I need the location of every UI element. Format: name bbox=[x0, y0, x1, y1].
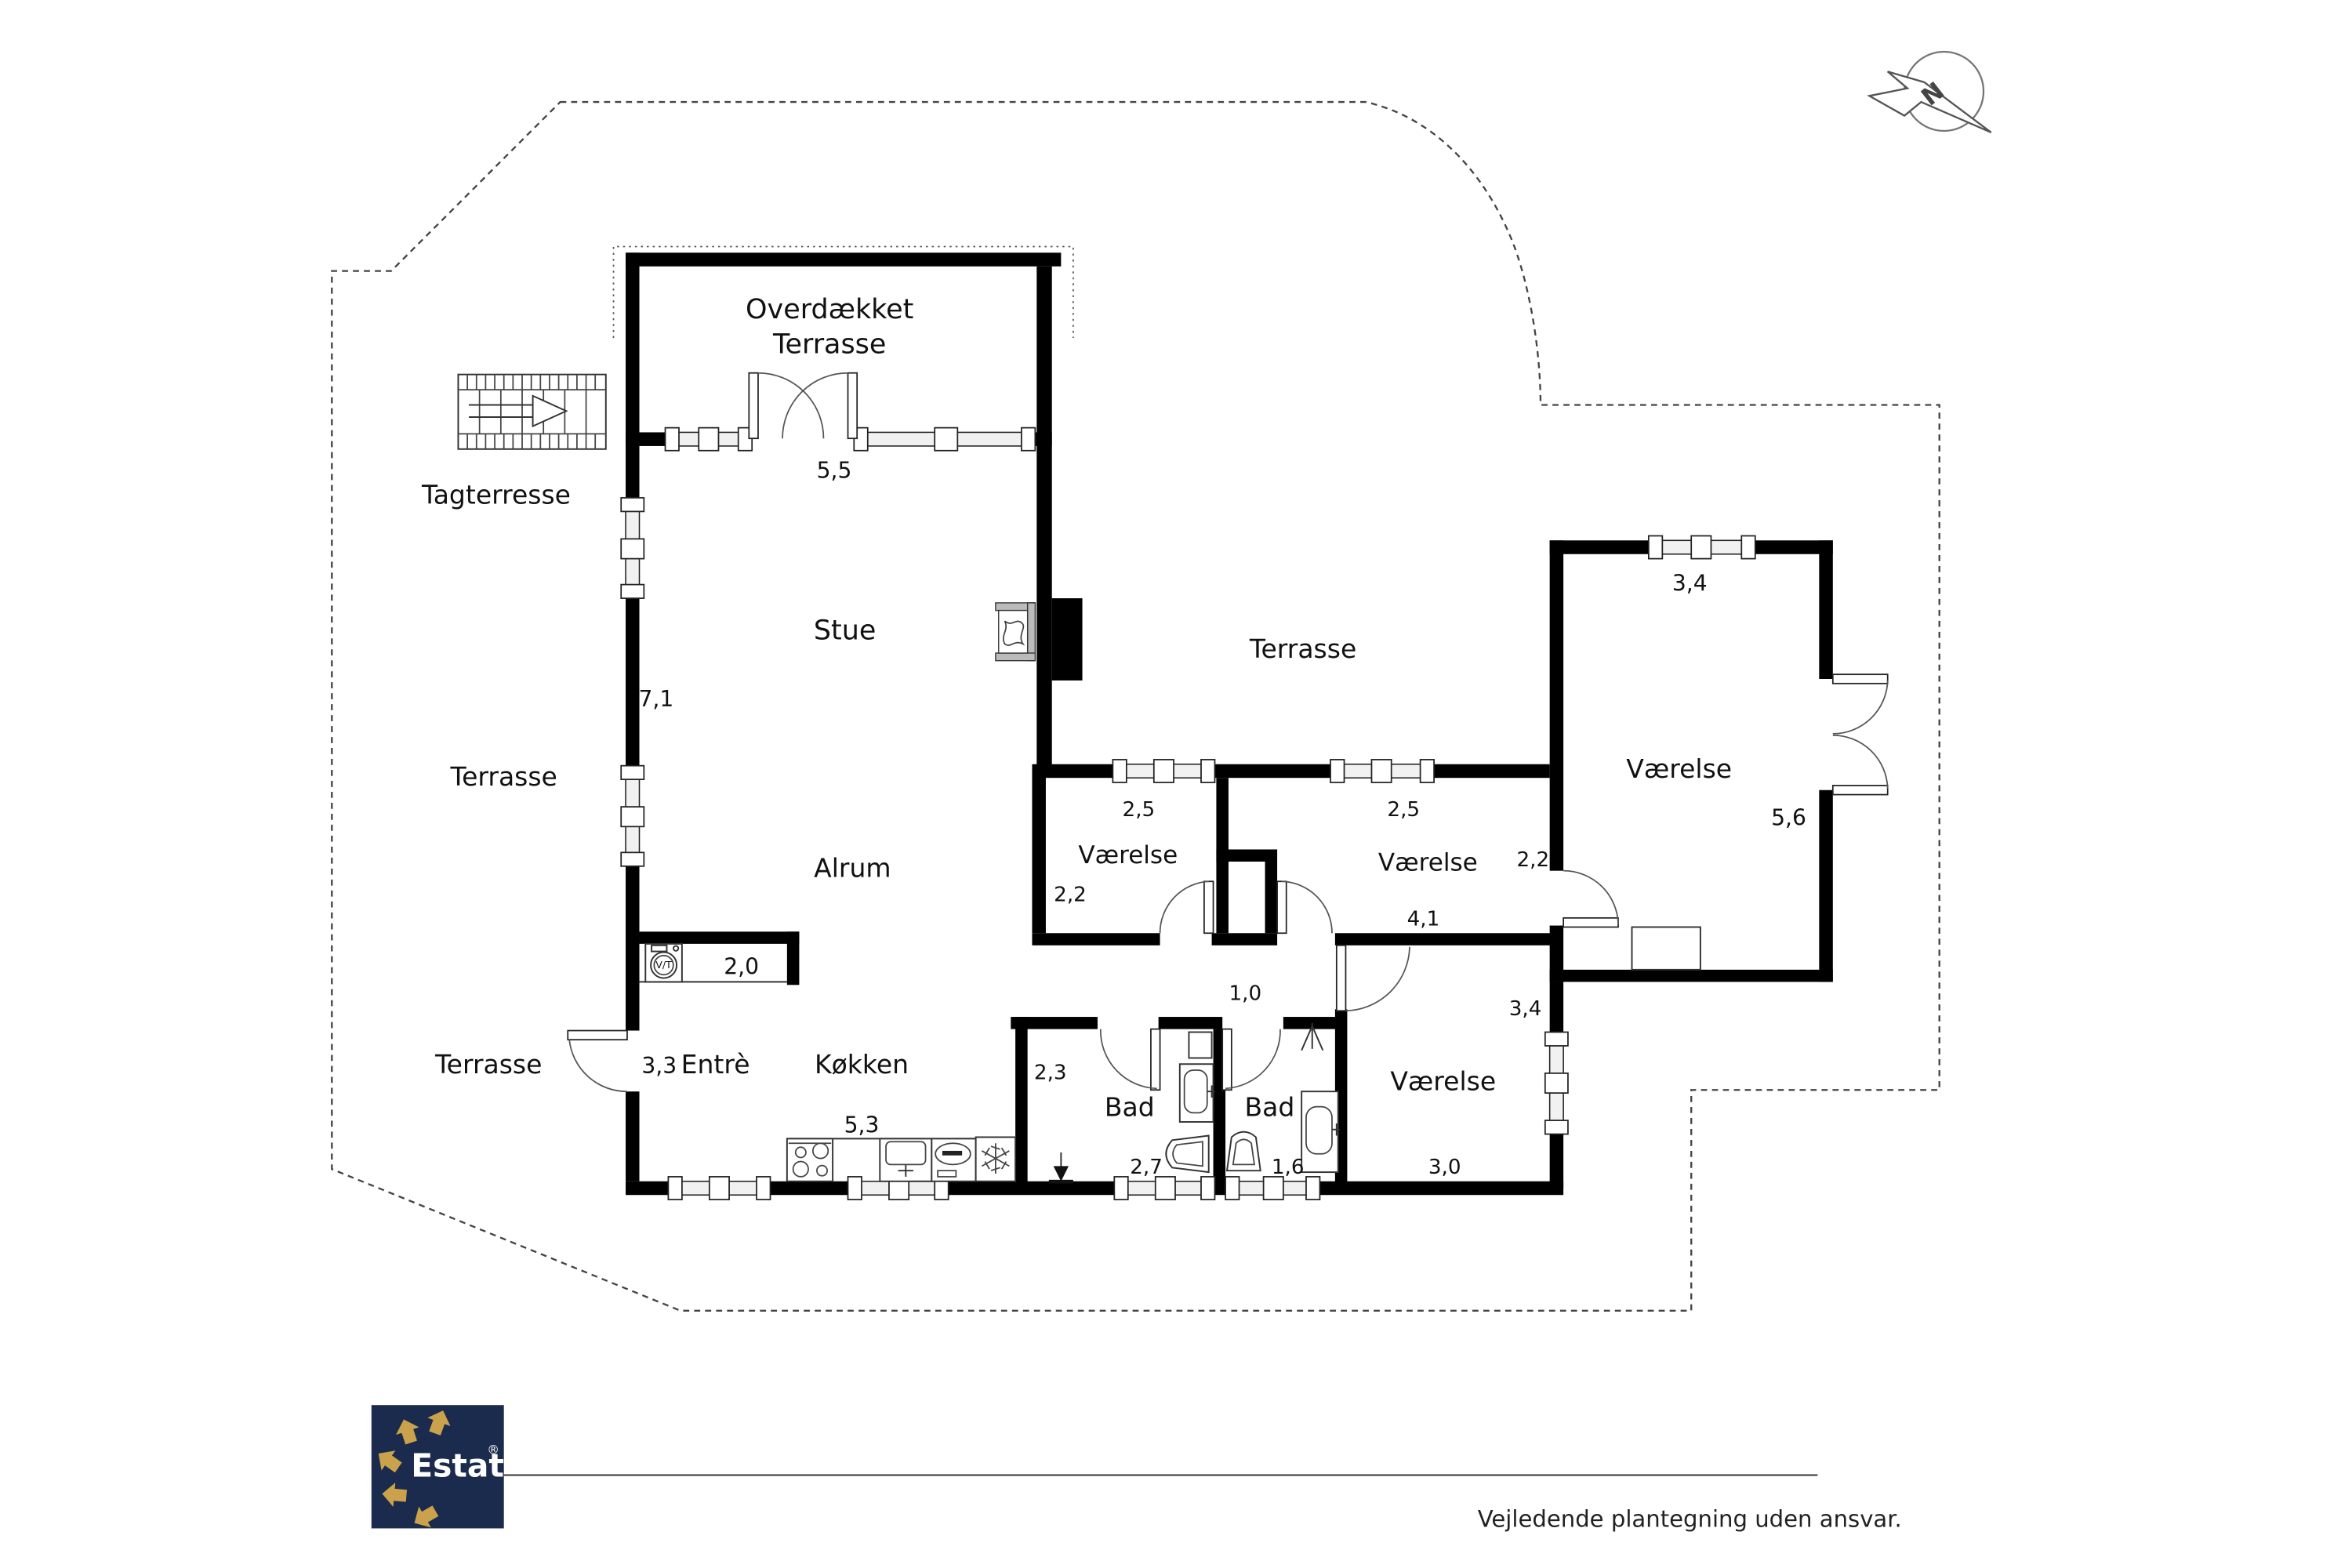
dim-bath1-w: 2,3 bbox=[1034, 1062, 1067, 1085]
floor-drain-arrow-icon bbox=[1049, 1152, 1073, 1184]
terrace-southwest-label: Terrasse bbox=[434, 1049, 542, 1080]
fireplace-icon bbox=[996, 603, 1035, 661]
window-icon bbox=[621, 766, 644, 866]
window-icon bbox=[621, 498, 644, 598]
dim-bath2-w: 1,6 bbox=[1272, 1156, 1305, 1179]
property-boundary bbox=[332, 102, 1939, 1311]
door-icon bbox=[1160, 881, 1214, 933]
stairs-icon bbox=[458, 375, 605, 449]
door-icon bbox=[1222, 1029, 1280, 1091]
window-icon bbox=[854, 428, 1035, 451]
dim-bedroom-mid-l: 4,1 bbox=[1407, 908, 1440, 931]
dim-bedroom-left-w: 2,5 bbox=[1123, 798, 1156, 822]
bedroom-mid-label: Værelse bbox=[1378, 849, 1478, 877]
estate-logo: Estate ® bbox=[372, 1405, 526, 1534]
living-room-label: Stue bbox=[814, 615, 877, 647]
window-icon bbox=[1112, 760, 1214, 782]
french-door-icon bbox=[1833, 674, 1888, 794]
dim-bedroom-east-d: 5,6 bbox=[1771, 804, 1806, 830]
dim-bedroom-south-d: 3,4 bbox=[1509, 997, 1542, 1021]
dim-covered-terrace: 5,5 bbox=[817, 458, 852, 484]
cabinet-icon bbox=[1189, 1032, 1211, 1058]
fireplace-stub-wall bbox=[1052, 598, 1083, 681]
disclaimer-text: Vejledende plantegning uden ansvar. bbox=[1478, 1506, 1902, 1533]
entry-door-icon bbox=[568, 1031, 627, 1092]
bedroom-east-label: Værelse bbox=[1626, 753, 1732, 784]
washbasin-icon bbox=[1301, 1091, 1340, 1172]
window-icon bbox=[1225, 1177, 1319, 1200]
door-icon bbox=[1277, 881, 1332, 933]
bath2-label: Bad bbox=[1244, 1091, 1294, 1122]
toilet-icon bbox=[1227, 1132, 1261, 1171]
window-icon bbox=[668, 1177, 770, 1200]
window-icon bbox=[666, 428, 753, 451]
dim-bedroom-mid-w: 2,5 bbox=[1387, 798, 1420, 822]
dim-hall: 1,0 bbox=[1229, 982, 1261, 1006]
dim-bedroom-left-d: 2,2 bbox=[1054, 883, 1087, 906]
window-icon bbox=[1330, 760, 1434, 782]
dim-kitchen: 5,3 bbox=[844, 1112, 880, 1138]
dim-bath1-d: 2,7 bbox=[1130, 1156, 1163, 1179]
door-icon bbox=[1337, 946, 1410, 1011]
door-icon bbox=[1563, 871, 1618, 927]
bath1-label: Bad bbox=[1105, 1091, 1155, 1122]
terrace-east-label: Terrasse bbox=[1249, 633, 1356, 664]
covered-terrace-label-2: Terrasse bbox=[772, 328, 886, 360]
dim-entry: 3,3 bbox=[641, 1053, 677, 1079]
logo-brand-text: Estate bbox=[411, 1446, 525, 1484]
second-sink-icon bbox=[931, 1138, 975, 1181]
washbasin-icon bbox=[1180, 1064, 1215, 1122]
terrace-west-label: Terrasse bbox=[450, 761, 557, 792]
dim-utility: 2,0 bbox=[724, 954, 759, 980]
floorplan-page: N bbox=[0, 0, 2352, 1568]
logo-registered-mark: ® bbox=[487, 1443, 499, 1457]
window-icon bbox=[1545, 1032, 1568, 1134]
toilet-icon bbox=[1166, 1136, 1208, 1173]
french-door-icon bbox=[749, 373, 857, 438]
window-icon bbox=[1649, 535, 1755, 558]
bed-icon bbox=[1632, 927, 1700, 969]
roof-terrace-label: Tagterresse bbox=[421, 480, 571, 510]
bedroom-south-label: Værelse bbox=[1390, 1065, 1496, 1096]
kitchen-label: Køkken bbox=[815, 1049, 909, 1080]
sink-icon bbox=[880, 1138, 931, 1181]
dim-bedroom-east-w: 3,4 bbox=[1672, 570, 1708, 596]
stove-icon bbox=[787, 1138, 833, 1181]
door-icons bbox=[568, 373, 1887, 1091]
family-room-label: Alrum bbox=[814, 852, 891, 883]
dim-bedroom-south-w: 3,0 bbox=[1428, 1156, 1461, 1179]
window-icon bbox=[1114, 1177, 1214, 1200]
door-icon bbox=[1101, 1029, 1160, 1091]
kitchen-appliances bbox=[787, 1137, 1015, 1181]
dim-living-room: 7,1 bbox=[638, 686, 673, 712]
utility-vt-label: V/T bbox=[655, 959, 672, 971]
north-compass-icon: N bbox=[1869, 52, 1991, 132]
bedroom-left-label: Værelse bbox=[1078, 841, 1178, 869]
entry-label: Entrè bbox=[681, 1049, 750, 1080]
covered-terrace-label-1: Overdækket bbox=[746, 294, 913, 325]
dim-bedroom-mid-door: 2,2 bbox=[1516, 848, 1549, 872]
freezer-icon bbox=[976, 1137, 1015, 1181]
